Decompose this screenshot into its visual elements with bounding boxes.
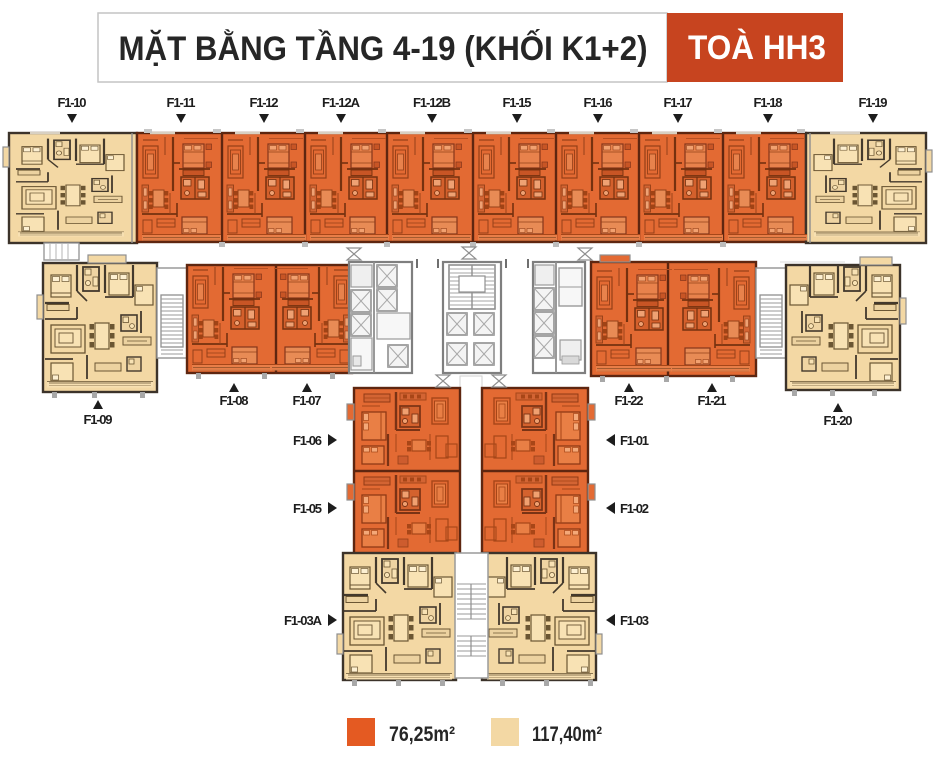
svg-text:F1-11: F1-11 [167,95,196,110]
svg-text:F1-22: F1-22 [615,393,644,408]
svg-text:F1-20: F1-20 [824,413,853,428]
svg-text:F1-02: F1-02 [620,501,649,516]
svg-text:F1-03: F1-03 [620,613,649,628]
svg-text:F1-06: F1-06 [293,433,322,448]
svg-text:F1-12A: F1-12A [322,95,361,110]
svg-text:F1-01: F1-01 [620,433,649,448]
svg-text:F1-08: F1-08 [220,393,249,408]
svg-text:F1-09: F1-09 [84,412,113,427]
svg-text:F1-18: F1-18 [754,95,783,110]
svg-text:F1-16: F1-16 [584,95,613,110]
svg-text:F1-19: F1-19 [859,95,888,110]
svg-text:F1-15: F1-15 [503,95,532,110]
svg-text:F1-07: F1-07 [293,393,322,408]
svg-text:F1-21: F1-21 [698,393,727,408]
svg-text:MẶT BẰNG TẦNG 4-19 (KHỐI K1+2): MẶT BẰNG TẦNG 4-19 (KHỐI K1+2) [119,29,648,68]
svg-text:F1-17: F1-17 [664,95,693,110]
svg-text:F1-12: F1-12 [250,95,279,110]
svg-text:117,40m²: 117,40m² [532,723,602,746]
svg-text:F1-12B: F1-12B [413,95,451,110]
svg-text:F1-03A: F1-03A [284,613,323,628]
svg-text:76,25m²: 76,25m² [389,723,455,746]
svg-text:F1-10: F1-10 [58,95,87,110]
svg-text:TOÀ HH3: TOÀ HH3 [688,29,826,67]
svg-text:F1-05: F1-05 [293,501,322,516]
